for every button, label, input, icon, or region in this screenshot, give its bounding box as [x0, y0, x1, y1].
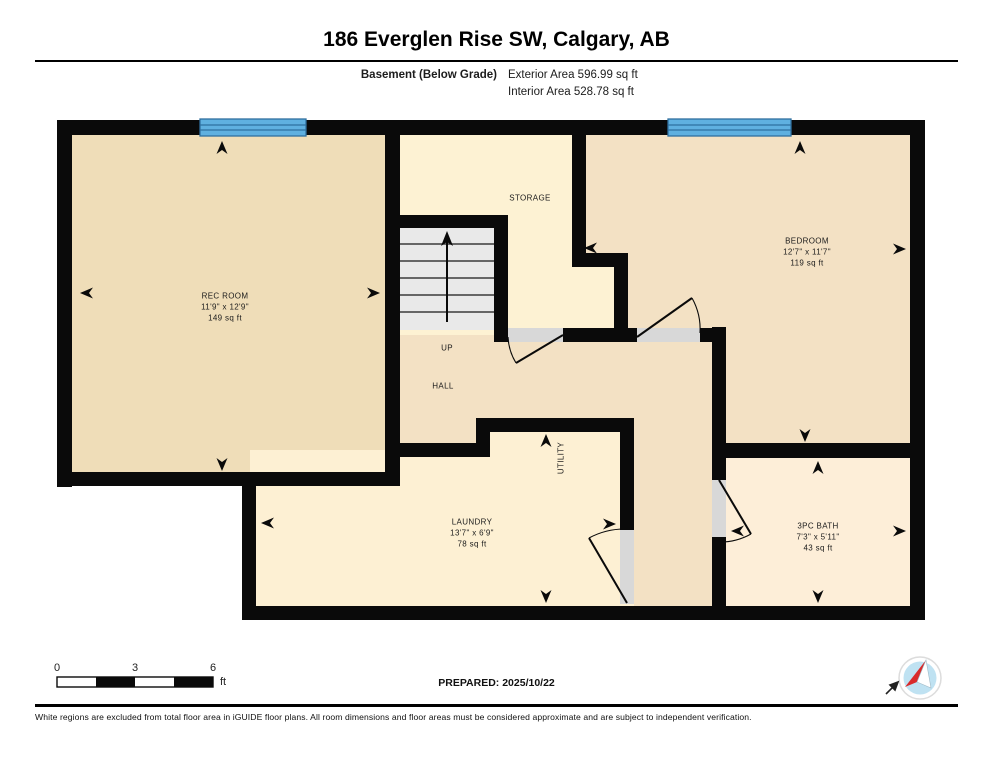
title-divider	[35, 60, 958, 62]
scale-num-6: 6	[210, 662, 216, 674]
disclaimer-text: White regions are excluded from total fl…	[35, 712, 752, 722]
room-label-hall: HALL	[432, 381, 453, 392]
rec-room-window	[200, 119, 306, 136]
stairs	[399, 228, 494, 330]
room-label-laundry: LAUNDRY 13'7" x 6'9" 78 sq ft	[450, 517, 494, 550]
floorplan-drawing	[0, 0, 993, 768]
floorplan-page: 186 Everglen Rise SW, Calgary, AB Baseme…	[0, 0, 993, 768]
room-label-utility: UTILITY	[556, 442, 567, 474]
page-title: 186 Everglen Rise SW, Calgary, AB	[0, 28, 993, 52]
interior-area: Interior Area 528.78 sq ft	[508, 86, 634, 98]
footer-divider	[35, 704, 958, 707]
scale-num-0: 0	[54, 662, 60, 674]
bedroom-window	[668, 119, 791, 136]
scale-num-3: 3	[132, 662, 138, 674]
prepared-date: PREPARED: 2025/10/22	[0, 677, 993, 689]
room-label-storage: STORAGE	[509, 193, 550, 204]
room-label-bedroom: BEDROOM 12'7" x 11'7" 119 sq ft	[783, 236, 831, 269]
label-up: UP	[441, 343, 453, 354]
room-label-bath: 3PC BATH 7'3" x 5'11" 43 sq ft	[796, 521, 839, 554]
room-label-rec-room: REC ROOM 11'9" x 12'9" 149 sq ft	[201, 291, 249, 324]
exterior-area: Exterior Area 596.99 sq ft	[508, 69, 638, 81]
floor-label: Basement (Below Grade)	[361, 69, 497, 81]
